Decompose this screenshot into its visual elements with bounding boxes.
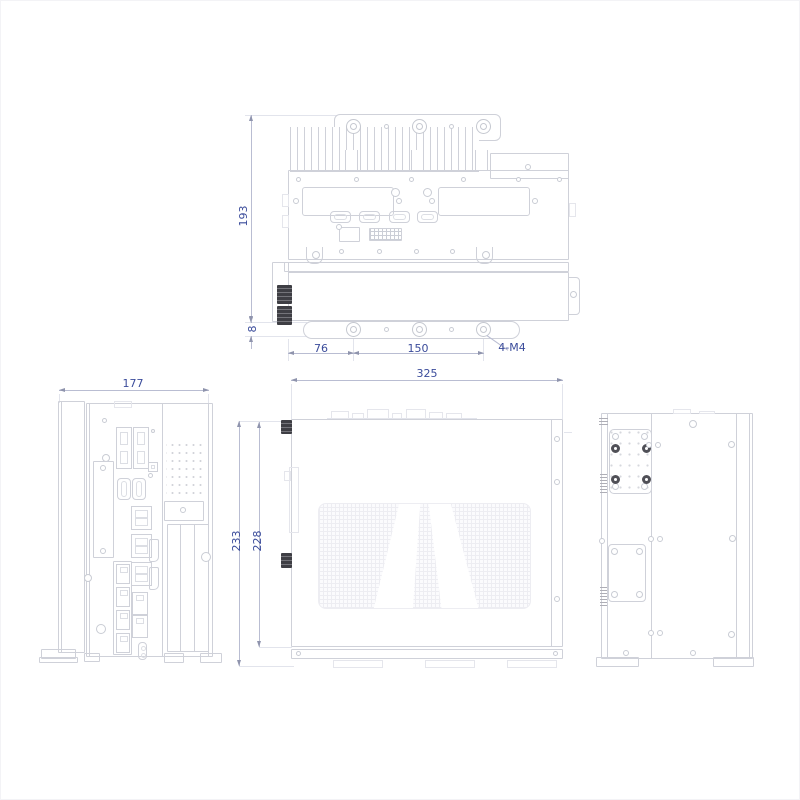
rj45-port bbox=[132, 592, 148, 615]
screw-hole bbox=[553, 651, 558, 656]
dim-label-width: 325 bbox=[407, 368, 447, 380]
power-jack bbox=[339, 227, 360, 242]
pilot-hole bbox=[384, 124, 389, 129]
washer-hole bbox=[412, 119, 427, 134]
drawing-canvas: 193 8 bbox=[0, 0, 800, 800]
rj45-port bbox=[116, 564, 130, 584]
screw-hole bbox=[532, 198, 538, 204]
antenna-hole bbox=[201, 552, 211, 562]
mount-screw bbox=[642, 475, 651, 484]
top-latch bbox=[114, 401, 132, 408]
antenna-hole bbox=[391, 188, 400, 197]
heatsink-fins bbox=[290, 127, 479, 172]
extension-line bbox=[291, 384, 292, 419]
screw-hole bbox=[657, 630, 663, 636]
dim-line-width bbox=[291, 380, 563, 381]
screw-hole bbox=[689, 420, 697, 428]
chassis-band bbox=[284, 262, 569, 272]
terminal-block bbox=[369, 228, 402, 241]
extension-line bbox=[288, 339, 289, 361]
screw-hole bbox=[102, 418, 107, 423]
antenna-hole bbox=[423, 188, 432, 197]
hidden-connector bbox=[367, 409, 389, 419]
screw-hole bbox=[729, 535, 736, 542]
screw-hole bbox=[690, 650, 696, 656]
antenna-hole bbox=[96, 624, 106, 634]
displayport bbox=[149, 539, 159, 562]
screw-hole bbox=[646, 442, 652, 448]
com-port bbox=[117, 478, 131, 500]
pilot-hole bbox=[449, 124, 454, 129]
wall-bracket-flange bbox=[58, 401, 85, 653]
chassis-foot bbox=[713, 657, 754, 667]
bracket-tab bbox=[333, 660, 383, 668]
rj45-port bbox=[116, 633, 130, 653]
pilot-hole bbox=[449, 327, 454, 332]
screw-hole bbox=[296, 651, 301, 656]
mesh-divider bbox=[319, 504, 530, 608]
extension-line bbox=[353, 339, 354, 361]
flange-line bbox=[61, 402, 62, 652]
screw-hole bbox=[100, 465, 106, 471]
panel-edge bbox=[749, 414, 750, 658]
vent-mesh bbox=[318, 503, 531, 609]
screw-hole bbox=[636, 591, 643, 598]
card-slot-line bbox=[180, 525, 181, 651]
mesh-divider bbox=[319, 504, 530, 608]
usb-port-stack bbox=[116, 427, 132, 469]
hidden-connector bbox=[331, 411, 349, 419]
front-view: 177 bbox=[36, 381, 254, 673]
extension-line bbox=[239, 666, 294, 667]
panel-tab bbox=[569, 203, 576, 217]
extension-line bbox=[245, 115, 337, 116]
washer-hole bbox=[346, 322, 361, 337]
dim-line-offset bbox=[251, 336, 252, 349]
screw-hole bbox=[570, 291, 577, 298]
screw-hole bbox=[599, 538, 605, 544]
dim-label-depth-inner: 228 bbox=[252, 525, 264, 557]
screw-hole bbox=[655, 442, 661, 448]
chassis-foot bbox=[84, 653, 100, 662]
hidden-connector bbox=[406, 409, 426, 419]
top-latch bbox=[673, 409, 691, 414]
screw-hole bbox=[461, 177, 466, 182]
panel-edge bbox=[89, 404, 90, 656]
expansion-slot-right bbox=[438, 187, 530, 216]
card-slot-bay bbox=[167, 524, 209, 652]
screw-hole bbox=[396, 198, 402, 204]
screw-hole bbox=[293, 198, 299, 204]
panel-tab bbox=[282, 194, 289, 207]
screw-hole bbox=[450, 249, 455, 254]
bracket-flange bbox=[601, 413, 608, 659]
screw-hole bbox=[612, 483, 619, 490]
terminal-connector bbox=[277, 285, 292, 304]
chassis-foot bbox=[200, 653, 222, 663]
vent-dot-grid bbox=[166, 438, 203, 500]
screw-hole bbox=[611, 591, 618, 598]
bracket-section bbox=[600, 474, 607, 493]
heatsink-notch bbox=[475, 150, 488, 171]
audio-jack bbox=[138, 642, 147, 660]
chassis-foot bbox=[596, 657, 639, 667]
dim-line-offset bbox=[251, 309, 252, 322]
retention-clip bbox=[281, 553, 292, 568]
com-port bbox=[389, 211, 410, 223]
screw-hole bbox=[648, 630, 654, 636]
screw-hole bbox=[641, 483, 648, 490]
screw-hole bbox=[100, 548, 106, 554]
com-port bbox=[417, 211, 438, 223]
rj45-port bbox=[132, 615, 148, 638]
card-slot-line bbox=[194, 525, 195, 651]
screw-hole bbox=[377, 249, 382, 254]
led-indicator bbox=[151, 429, 155, 433]
front-bezel-strip bbox=[291, 649, 563, 659]
screw-hole bbox=[641, 433, 648, 440]
screw-hole bbox=[414, 249, 419, 254]
dim-label-height: 193 bbox=[238, 199, 250, 233]
screw-hole bbox=[516, 177, 521, 182]
screw-hole bbox=[728, 441, 735, 448]
screw-hole bbox=[339, 249, 344, 254]
screw-hole bbox=[409, 177, 414, 182]
dim-line-width bbox=[59, 390, 209, 391]
screw-hole bbox=[354, 177, 359, 182]
screw-hole bbox=[296, 177, 301, 182]
com-port bbox=[132, 478, 146, 500]
rear-view: 193 8 bbox=[249, 106, 589, 368]
screw-hole bbox=[648, 536, 654, 542]
top-latch bbox=[699, 411, 715, 414]
extension-line bbox=[245, 336, 307, 337]
screw-hole bbox=[636, 548, 643, 555]
top-view: 325 233 228 bbox=[231, 371, 593, 683]
panel-edge bbox=[736, 414, 737, 658]
panel-edge bbox=[551, 420, 552, 646]
displayport bbox=[149, 567, 159, 590]
side-view bbox=[591, 401, 761, 673]
dim-label-offset: 8 bbox=[247, 323, 259, 335]
mount-screw bbox=[611, 475, 620, 484]
usb-port-stack bbox=[133, 427, 149, 469]
screw-hole bbox=[612, 433, 619, 440]
dim-label-hole-left: 76 bbox=[303, 343, 339, 355]
extension-line bbox=[562, 384, 563, 419]
bracket-tab bbox=[425, 660, 475, 668]
panel-tab bbox=[282, 215, 289, 228]
rj45-port bbox=[116, 610, 130, 630]
washer-hole bbox=[476, 119, 491, 134]
screw-hole bbox=[557, 177, 562, 182]
dim-label-width: 177 bbox=[108, 378, 158, 390]
washer-hole bbox=[476, 322, 491, 337]
dim-label-depth-outer: 233 bbox=[231, 526, 243, 556]
extension-line bbox=[483, 339, 484, 361]
slot-cover bbox=[93, 461, 114, 558]
screw-hole bbox=[728, 631, 735, 638]
bracket-foot-pad bbox=[39, 657, 78, 663]
heatsink-notch bbox=[345, 150, 358, 171]
screw-hole bbox=[148, 473, 153, 478]
antenna-hole bbox=[84, 574, 92, 582]
bracket-tab bbox=[507, 660, 557, 668]
screw-hole bbox=[554, 479, 560, 485]
dim-label-hole-span: 150 bbox=[398, 343, 438, 355]
screw-hole bbox=[657, 536, 663, 542]
mount-screw bbox=[611, 444, 620, 453]
panel-edge bbox=[162, 404, 163, 656]
screw-hole bbox=[554, 596, 560, 602]
dim-line-height bbox=[251, 115, 252, 323]
pilot-hole bbox=[384, 327, 389, 332]
heatsink-notch bbox=[411, 150, 424, 171]
hidden-connector bbox=[429, 412, 443, 419]
washer-hole bbox=[346, 119, 361, 134]
power-jack-pin bbox=[336, 224, 342, 230]
screw-hole bbox=[180, 507, 186, 513]
side-bracket-outline bbox=[284, 471, 291, 481]
dim-label-thread: 4-M4 bbox=[489, 342, 535, 354]
bracket-section bbox=[599, 418, 608, 426]
edge-tick bbox=[564, 432, 572, 433]
screw-hole bbox=[429, 198, 435, 204]
screw-hole bbox=[611, 548, 618, 555]
lower-chassis bbox=[288, 272, 569, 321]
bracket-section bbox=[600, 587, 607, 606]
com-port bbox=[359, 211, 380, 223]
retention-clip bbox=[281, 420, 292, 434]
chassis-foot bbox=[164, 653, 184, 663]
com-port bbox=[330, 211, 351, 223]
screw-hole bbox=[554, 436, 560, 442]
rj45-port bbox=[116, 587, 130, 607]
screw-hole bbox=[623, 650, 629, 656]
terminal-connector bbox=[277, 306, 292, 325]
usb-port-pair bbox=[131, 506, 152, 530]
power-button bbox=[148, 462, 158, 472]
extension-line bbox=[259, 647, 292, 648]
washer-hole bbox=[412, 322, 427, 337]
